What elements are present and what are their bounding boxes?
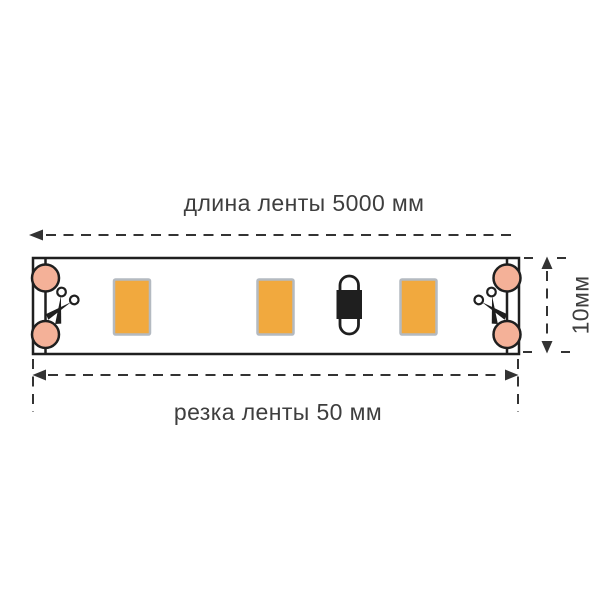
diagram-graphics [0,0,616,616]
arrow-right-icon [505,370,519,381]
led-strip-dimension-diagram: длина ленты 5000 мм [0,0,616,616]
arrow-up-icon [542,257,553,270]
led-chip [114,280,150,335]
solder-pad [32,265,59,292]
strip-width-label: 10мм [570,276,593,335]
width-dimension-line [523,257,570,354]
solder-pad [494,265,521,292]
resistor-body [337,290,363,319]
led-chip [258,280,294,335]
solder-pad [32,321,59,348]
arrow-down-icon [542,341,553,354]
resistor [337,276,363,334]
solder-pad [494,321,521,348]
arrow-left-icon [29,230,43,241]
led-chip [401,280,437,335]
arrow-left-icon [33,370,47,381]
length-dimension-line [29,230,516,241]
cut-length-label: резка ленты 50 мм [174,401,382,424]
